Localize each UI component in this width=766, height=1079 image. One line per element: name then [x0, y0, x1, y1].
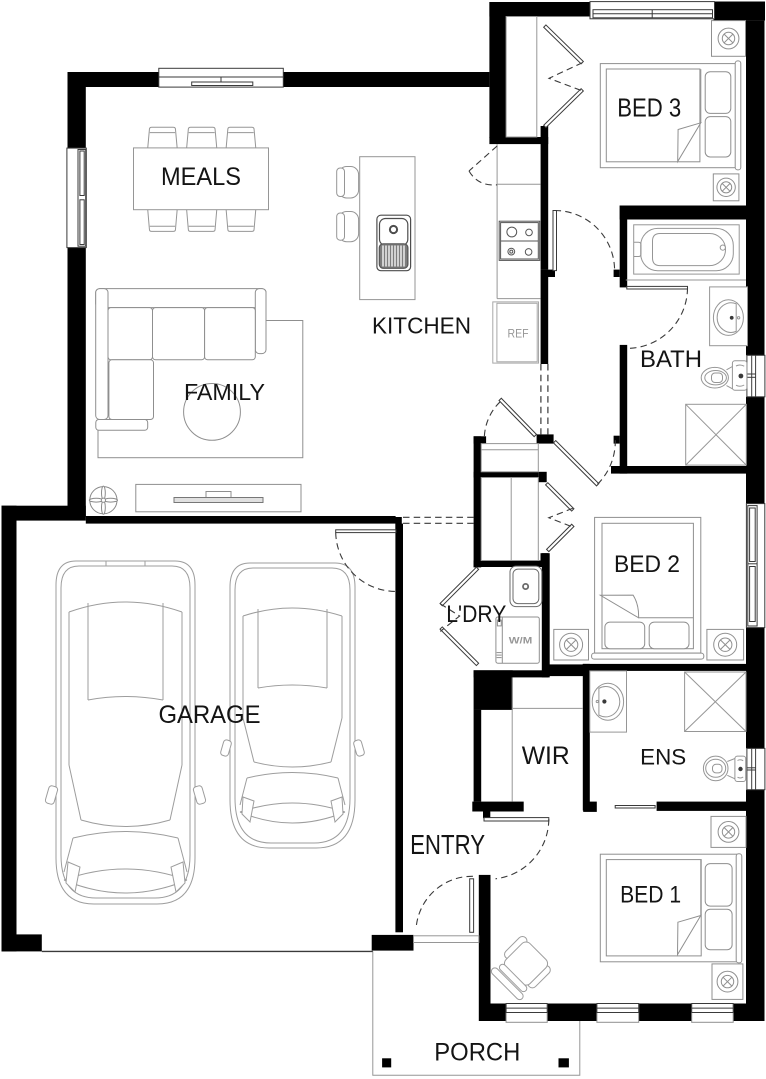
svg-text:BATH: BATH	[640, 346, 702, 373]
svg-text:REF: REF	[508, 326, 529, 340]
svg-text:ENTRY: ENTRY	[410, 829, 485, 860]
svg-text:BED 3: BED 3	[617, 94, 681, 122]
svg-text:W/M: W/M	[509, 635, 533, 645]
svg-text:WIR: WIR	[522, 742, 570, 770]
svg-text:L'DRY: L'DRY	[446, 602, 506, 628]
svg-text:KITCHEN: KITCHEN	[372, 313, 471, 339]
svg-text:ENS: ENS	[640, 745, 686, 770]
svg-text:BED 1: BED 1	[620, 882, 681, 908]
svg-text:FAMILY: FAMILY	[184, 379, 265, 405]
svg-text:PORCH: PORCH	[434, 1039, 520, 1067]
svg-text:MEALS: MEALS	[161, 163, 241, 191]
svg-text:BED 2: BED 2	[614, 551, 680, 578]
svg-text:GARAGE: GARAGE	[159, 701, 261, 729]
